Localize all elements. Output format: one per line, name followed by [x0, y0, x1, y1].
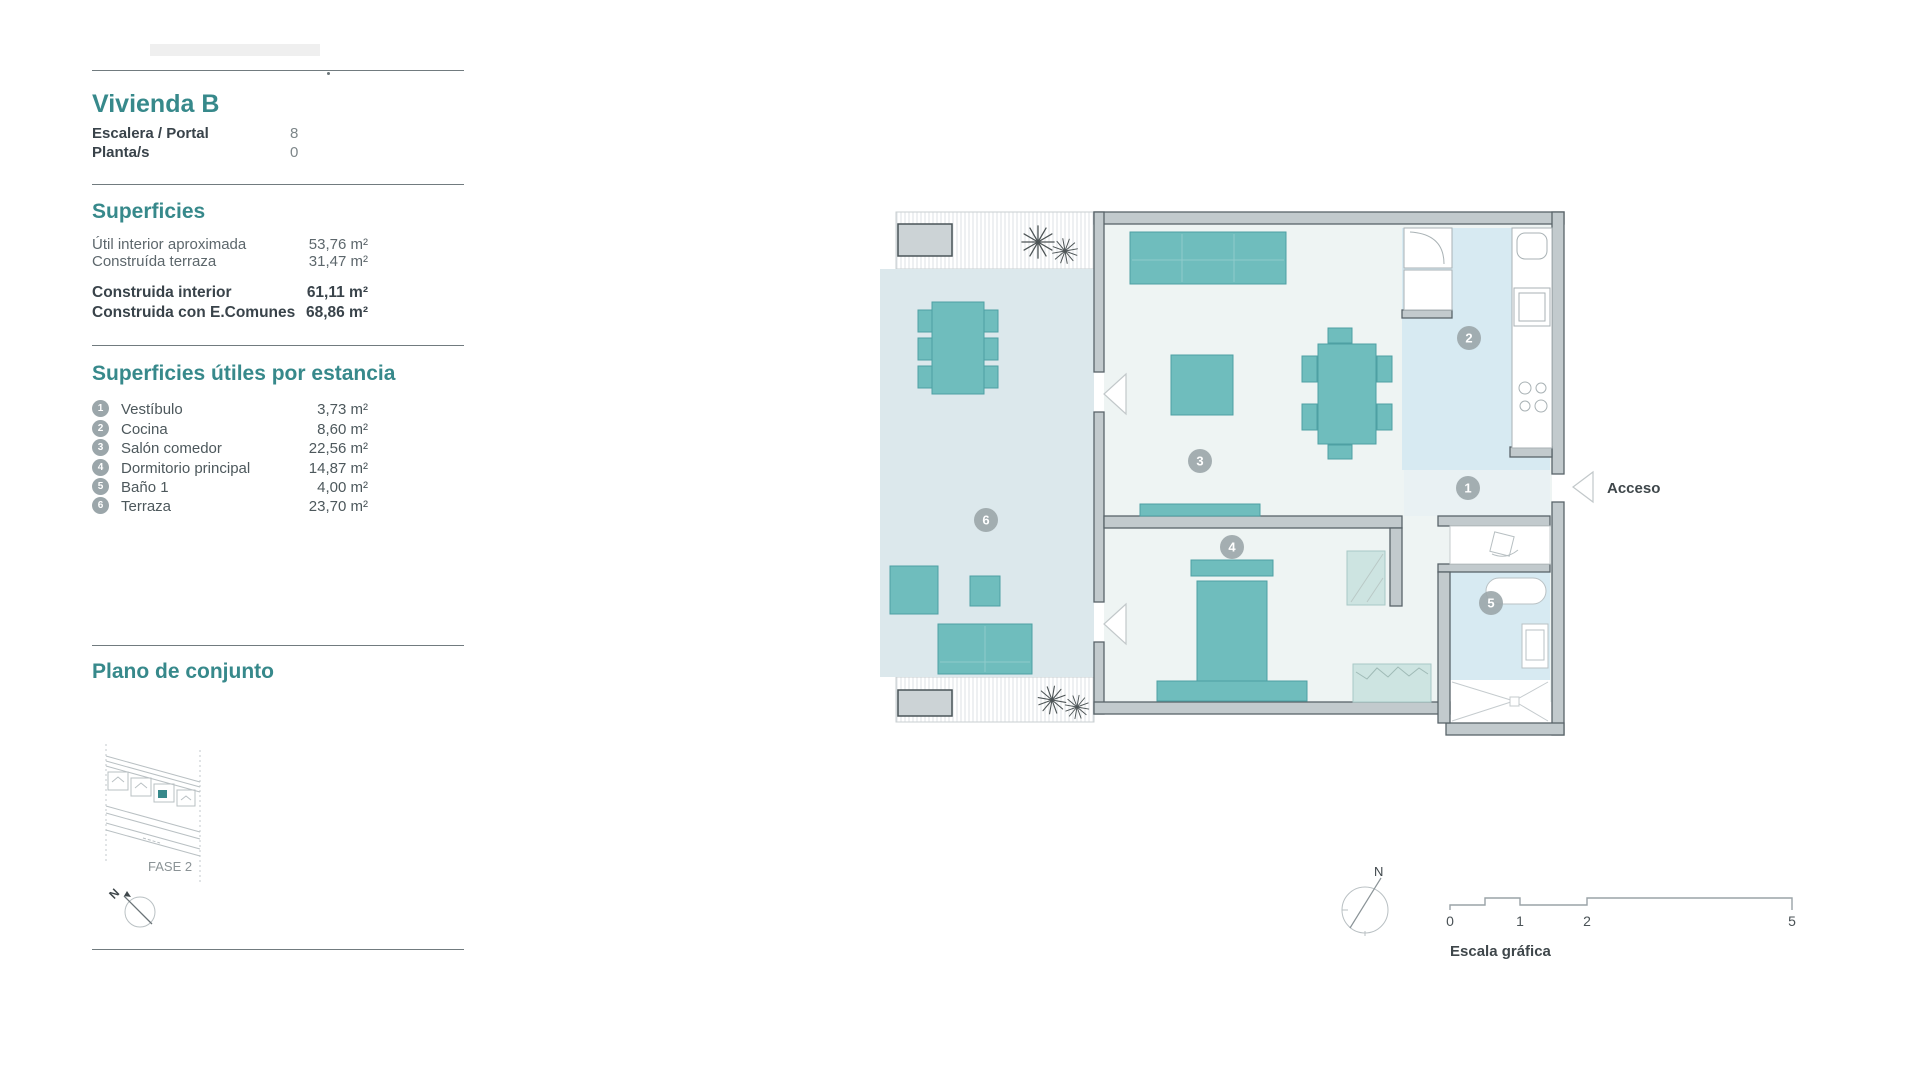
unit-row-value: 8: [290, 125, 298, 142]
surface-value: 61,11 m²: [307, 284, 368, 301]
room-number-badge: 1: [92, 400, 109, 417]
terrace-dining-set: [918, 302, 998, 394]
room-number-badge: 4: [92, 459, 109, 476]
room-row: 5 Baño 1 4,00 m²: [92, 478, 368, 496]
badge-terraza: 6: [974, 508, 998, 532]
room-area: 4,00 m²: [317, 479, 368, 496]
north-arrow-icon: N: [1342, 864, 1388, 936]
room-label: Salón comedor: [121, 440, 222, 457]
room-row: 4 Dormitorio principal 14,87 m²: [92, 459, 368, 477]
badge-bano: 5: [1479, 591, 1503, 615]
room-area: 22,56 m²: [309, 440, 368, 457]
svg-text:2: 2: [1465, 331, 1472, 346]
room-area: 8,60 m²: [317, 421, 368, 438]
wardrobe: [1353, 664, 1431, 702]
room-label: Vestíbulo: [121, 401, 183, 418]
site-map-unit-highlight: [158, 790, 167, 798]
site-map-roads: [106, 756, 200, 856]
scale-title: Escala gráfica: [1450, 943, 1552, 960]
surface-row: Construida con E.Comunes 68,86 m²: [92, 304, 368, 321]
surface-label: Útil interior aproximada: [92, 236, 246, 253]
site-map: FASE 2 N: [98, 742, 218, 942]
surface-value: 53,76 m²: [309, 236, 368, 253]
room-area: 23,70 m²: [309, 498, 368, 515]
scale-tick: 2: [1583, 913, 1591, 929]
room-label: Cocina: [121, 421, 168, 438]
planter-box: [898, 690, 952, 716]
room-number-badge: 3: [92, 439, 109, 456]
divider: [92, 184, 464, 185]
surface-row: Construída terraza 31,47 m²: [92, 253, 368, 270]
room-label: Baño 1: [121, 479, 169, 496]
room-label: Terraza: [121, 498, 171, 515]
room-row: 3 Salón comedor 22,56 m²: [92, 439, 368, 457]
svg-text:4: 4: [1228, 540, 1236, 555]
badge-dormitorio: 4: [1220, 535, 1244, 559]
scale-bar: 0 1 2 5 Escala gráfica: [1446, 898, 1796, 960]
phase-label: FASE 2: [148, 859, 192, 874]
unit-row-label: Planta/s: [92, 144, 150, 161]
terrace-room: [880, 269, 1094, 677]
unit-row-value: 0: [290, 144, 298, 161]
scale-tick: 0: [1446, 913, 1454, 929]
svg-text:1: 1: [1464, 481, 1471, 496]
unit-title: Vivienda B: [92, 90, 219, 119]
surface-label: Construida con E.Comunes: [92, 304, 295, 321]
siteplan-title: Plano de conjunto: [92, 660, 274, 684]
planter-box: [898, 224, 952, 256]
entrance-door-icon: [1573, 472, 1593, 502]
unit-row: Planta/s 0: [92, 144, 368, 161]
utility-closet: [1450, 526, 1550, 564]
room-row: 2 Cocina 8,60 m²: [92, 420, 368, 438]
svg-text:3: 3: [1196, 454, 1203, 469]
bed-headboard: [1191, 560, 1273, 576]
bed: [1197, 581, 1267, 681]
divider: [92, 345, 464, 346]
north-label: N: [1374, 864, 1383, 879]
room-label: Dormitorio principal: [121, 460, 250, 477]
floor-plan-drawing: Acceso 1 2 3 4 5: [880, 198, 1820, 988]
rooms-title: Superficies útiles por estancia: [92, 362, 395, 386]
surface-value: 31,47 m²: [309, 253, 368, 270]
faded-header-strip: [150, 44, 320, 56]
room-area: 14,87 m²: [309, 460, 368, 477]
divider: [92, 949, 464, 950]
scale-tick: 1: [1516, 913, 1524, 929]
floor-plan-sheet: Vivienda B Escalera / Portal 8 Planta/s …: [0, 0, 1920, 1080]
surfaces-title: Superficies: [92, 200, 205, 224]
surface-value: 68,86 m²: [306, 304, 368, 321]
surface-label: Construida interior: [92, 284, 232, 301]
surface-label: Construída terraza: [92, 253, 216, 270]
room-number-badge: 2: [92, 420, 109, 437]
unit-row: Escalera / Portal 8: [92, 125, 368, 142]
access-label: Acceso: [1607, 480, 1660, 497]
svg-text:6: 6: [982, 513, 989, 528]
room-row: 6 Terraza 23,70 m²: [92, 497, 368, 515]
dot-mark: [327, 72, 330, 75]
site-north-label: N: [106, 886, 122, 902]
room-number-badge: 5: [92, 478, 109, 495]
room-area: 3,73 m²: [317, 401, 368, 418]
divider: [92, 70, 464, 71]
badge-salon: 3: [1188, 449, 1212, 473]
scale-tick: 5: [1788, 913, 1796, 929]
divider: [92, 645, 464, 646]
surface-row: Construida interior 61,11 m²: [92, 284, 368, 301]
surface-row: Útil interior aproximada 53,76 m²: [92, 236, 368, 253]
svg-text:5: 5: [1487, 596, 1494, 611]
room-row: 1 Vestíbulo 3,73 m²: [92, 400, 368, 418]
badge-vestibulo: 1: [1456, 476, 1480, 500]
room-number-badge: 6: [92, 497, 109, 514]
badge-cocina: 2: [1457, 326, 1481, 350]
unit-row-label: Escalera / Portal: [92, 125, 209, 142]
site-north-arrow-icon: N: [106, 886, 155, 927]
